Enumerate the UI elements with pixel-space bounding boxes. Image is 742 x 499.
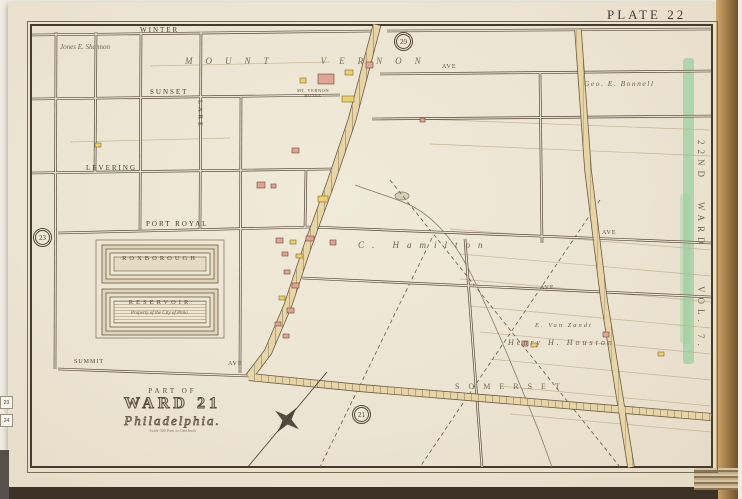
owner-bonnell: Geo. E. Bonnell	[584, 80, 654, 88]
plate-badge-left: 23	[35, 230, 50, 245]
plate-badge-bottom: 21	[354, 407, 369, 422]
street-label-ave-1: AVE	[228, 361, 243, 367]
atlas-scan: 23 24 PLATE 22	[0, 0, 742, 499]
street-label-sunset: SUNSET	[150, 89, 188, 96]
street-label-ave-2: AVE	[442, 64, 457, 70]
estate-mount-vernon: MOUNT VERNON	[185, 57, 434, 66]
reservoir-note: Property of the City of Phila.	[100, 311, 220, 316]
plate-badge-top: 29	[396, 34, 411, 49]
owner-houston: Henry H. Houston	[508, 339, 615, 347]
hotel-label: MT. VERNON HOTEL	[278, 88, 348, 98]
compass-north-arrow	[247, 372, 327, 468]
cartouche-ward: WARD 21	[95, 395, 250, 413]
street-label-lare: LARE	[196, 100, 203, 129]
reservoir-name-line2: RESERVOIR	[100, 300, 220, 307]
page-tab-23: 23	[0, 396, 13, 409]
margin-ward-line2: WARD	[696, 202, 705, 266]
ward-boundary-strip	[680, 58, 694, 364]
owner-shannon: Jones E. Shannon	[60, 44, 110, 51]
street-label-port-royal: PORT ROYAL	[146, 221, 208, 228]
hotel-label-line2: HOTEL	[278, 93, 348, 98]
page-right-edge	[716, 0, 738, 499]
page-left-dark-edge	[0, 450, 9, 499]
margin-ward-line1: 22ND	[696, 140, 705, 198]
cartouche-scale-note: Scale 300 Feet to One Inch	[107, 429, 239, 433]
owner-hamilton: C. Hamilton	[358, 241, 491, 250]
reservoir-name-line1: ROXBOROUGH	[100, 256, 220, 263]
street-label-ave-3: AVE	[602, 230, 617, 236]
margin-volume: VOL. 7.	[696, 286, 705, 340]
cartouche-part-of: PART OF	[95, 387, 250, 395]
map-cartouche: PART OF WARD 21 Philadelphia. Scale 300 …	[95, 387, 250, 434]
street-label-levering: LEVERING	[86, 165, 137, 172]
estate-somerset: SOMERSET	[455, 383, 569, 391]
street-label-summit: SUMMIT	[74, 359, 104, 365]
street-label-ave-4: AVE	[540, 285, 555, 291]
creek	[355, 185, 552, 467]
owner-vanzandt: E. Van Zandt	[535, 323, 593, 330]
page-right-sliver	[738, 0, 742, 499]
page-tab-24: 24	[0, 414, 13, 427]
plate-number: PLATE 22	[607, 8, 686, 21]
cartouche-city: Philadelphia.	[95, 413, 250, 429]
page-bottom-shadow	[8, 487, 718, 499]
street-label-winter: WINTER	[140, 27, 179, 34]
